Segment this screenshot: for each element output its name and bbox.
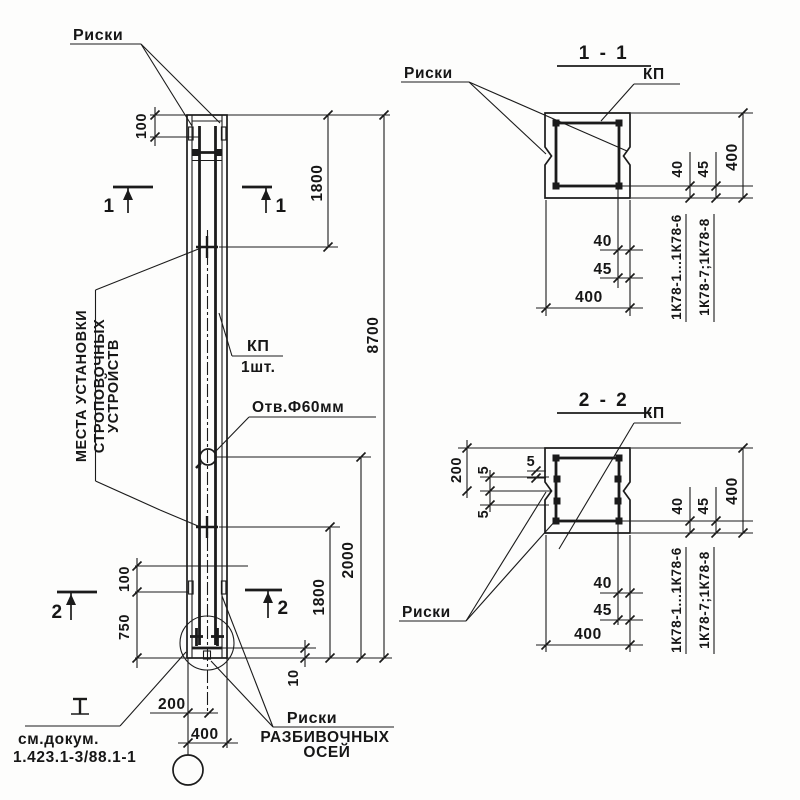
strop-callout: МЕСТА УСТАНОВКИ СТРОПОВОЧНЫХ УСТРОЙСТВ <box>74 248 201 526</box>
section-2-2-dim-400-bottom: 400 <box>574 626 602 643</box>
section-2-2-dim-40-bottom: 40 <box>594 575 612 592</box>
section-1-1-dims-bottom: 40 45 400 <box>536 188 643 316</box>
dim-100-bottom-label: 100 <box>117 566 133 592</box>
dim-400-base: 400 <box>178 726 238 748</box>
section-1-1-dims-right: 40 45 400 <box>622 109 753 203</box>
column-elevation <box>173 115 234 785</box>
section-arrow <box>66 594 76 605</box>
hole-label: Отв.Ф60мм <box>252 399 344 416</box>
section-1-1-dim-400-right: 400 <box>724 143 741 171</box>
doc-label-line1: см.докум. <box>18 731 99 748</box>
dim-400-base-label: 400 <box>191 726 219 743</box>
section-1-1-title: 1 - 1 <box>557 43 651 66</box>
top-anchor-band <box>192 149 223 161</box>
dim-100-top-label: 100 <box>134 113 150 139</box>
section-2-2-series-b: 1К78-7;1К78-8 <box>697 551 712 649</box>
doc-label-line2: 1.423.1-3/88.1-1 <box>13 749 136 766</box>
section-1-1-dim-400-bottom: 400 <box>575 289 603 306</box>
section-2-2-dim-400-right: 400 <box>724 477 741 505</box>
kp-elevation-callout: КП 1шт. <box>219 313 283 376</box>
section-2-2-dim-5-upper: 5 <box>476 466 492 475</box>
kp-elevation-label: КП <box>247 338 269 355</box>
axes-label-line3: ОСЕЙ <box>303 743 350 761</box>
section-2-2-dims-left: 200 5 5 5 <box>449 440 551 518</box>
section-mark-2-right-label: 2 <box>277 598 290 619</box>
section-2-2-dim-45-right: 45 <box>696 497 712 514</box>
section-2-2-dim-45-bottom: 45 <box>594 602 612 619</box>
section-2-2-kp-label: КП <box>643 405 665 422</box>
section-2-2-series-labels: 1К78-1...1К78-6 1К78-7;1К78-8 <box>669 547 714 654</box>
dim-1800-bottom: 1800 <box>311 523 335 663</box>
strop-label-line1: МЕСТА УСТАНОВКИ <box>74 310 90 462</box>
benchmark-icon <box>71 699 89 714</box>
section-2-2-title-label: 2 - 2 <box>579 390 630 411</box>
axis-line <box>173 658 227 785</box>
section-arrow <box>263 592 273 603</box>
section-2-2-series-a: 1К78-1...1К78-6 <box>669 547 684 653</box>
dim-10: 10 <box>286 640 310 687</box>
riski-top-label: Риски <box>73 27 123 44</box>
strop-label-line3: УСТРОЙСТВ <box>104 339 122 433</box>
dim-200-base-label: 200 <box>158 696 186 713</box>
riski-top-callout: Риски <box>70 27 220 126</box>
section-arrow <box>261 189 271 200</box>
dim-1800-bottom-label: 1800 <box>311 579 328 616</box>
section-2-2: 2 - 2 КП Риски 200 <box>399 390 753 654</box>
section-1-1-riski-label: Риски <box>404 65 453 82</box>
dim-2000-label: 2000 <box>340 542 357 579</box>
dim-750-label: 750 <box>117 614 133 640</box>
kp-qty-label: 1шт. <box>241 359 275 376</box>
dim-1800-top-label: 1800 <box>309 165 326 202</box>
section-mark-2-right: 2 <box>245 590 291 619</box>
section-1-1-stirrup <box>556 123 619 186</box>
dim-8700-label: 8700 <box>365 317 382 354</box>
dim-1800-top: 1800 <box>309 111 333 252</box>
dim-100-top: 100 <box>134 107 160 146</box>
elevation-dimensions: 100 1800 8700 2000 1800 1 <box>117 107 392 748</box>
section-1-1-series-b: 1К78-7;1К78-8 <box>697 218 712 316</box>
section-mark-2-left-label: 2 <box>51 602 64 623</box>
axis-bubble <box>173 755 203 785</box>
drawing-canvas: 100 1800 8700 2000 1800 1 <box>0 0 800 800</box>
axes-risk-callout: Риски РАЗБИВОЧНЫХ ОСЕЙ <box>211 596 394 761</box>
section-mark-2-left: 2 <box>51 592 97 623</box>
section-1-1-dim-45-bottom: 45 <box>594 261 612 278</box>
section-1-1-title-label: 1 - 1 <box>579 43 630 64</box>
section-2-2-rebar-dots <box>553 455 623 525</box>
section-1-1-series-labels: 1К78-1...1К78-6 1К78-7;1К78-8 <box>669 214 714 322</box>
section-2-2-dim-5-lower: 5 <box>476 510 492 519</box>
section-2-2-dim-200: 200 <box>449 457 465 483</box>
drawing-sheet: 100 1800 8700 2000 1800 1 <box>0 0 800 800</box>
section-1-1-riski-callout: Риски <box>401 65 627 154</box>
section-1-1-series-a: 1К78-1...1К78-6 <box>669 214 684 320</box>
section-1-1-rebar-dots <box>553 120 623 190</box>
section-1-1-kp-label: КП <box>643 66 665 83</box>
section-2-2-title: 2 - 2 <box>557 390 651 413</box>
section-2-2-stirrup <box>556 458 619 521</box>
section-1-1: 1 - 1 Риски КП 40 45 <box>401 43 753 322</box>
section-1-1-dim-45-right: 45 <box>696 160 712 177</box>
section-2-2-dims-right: 40 45 400 <box>622 444 753 538</box>
section-arrow <box>123 189 133 200</box>
dim-100-750-bottom: 100 750 <box>117 558 142 668</box>
dim-2000: 2000 <box>340 453 366 663</box>
axes-label-line1: Риски <box>287 710 337 727</box>
section-1-1-dim-40-bottom: 40 <box>594 233 612 250</box>
section-mark-1-left: 1 <box>103 187 153 217</box>
section-2-2-dim-40-right: 40 <box>670 497 686 514</box>
hole-callout: Отв.Ф60мм <box>215 399 376 452</box>
risk-marks-top <box>189 127 226 140</box>
section-mark-1-right-label: 1 <box>275 196 288 217</box>
section-2-2-riski-label: Риски <box>402 604 451 621</box>
section-1-1-dim-40-right: 40 <box>670 160 686 177</box>
dim-8700: 8700 <box>365 111 389 663</box>
dim-10-label: 10 <box>286 669 302 686</box>
section-2-2-dim-5-top: 5 <box>527 454 536 470</box>
section-2-2-dims-bottom: 40 45 400 <box>536 523 643 652</box>
section-mark-1-left-label: 1 <box>103 196 116 217</box>
section-mark-1-right: 1 <box>242 187 289 217</box>
